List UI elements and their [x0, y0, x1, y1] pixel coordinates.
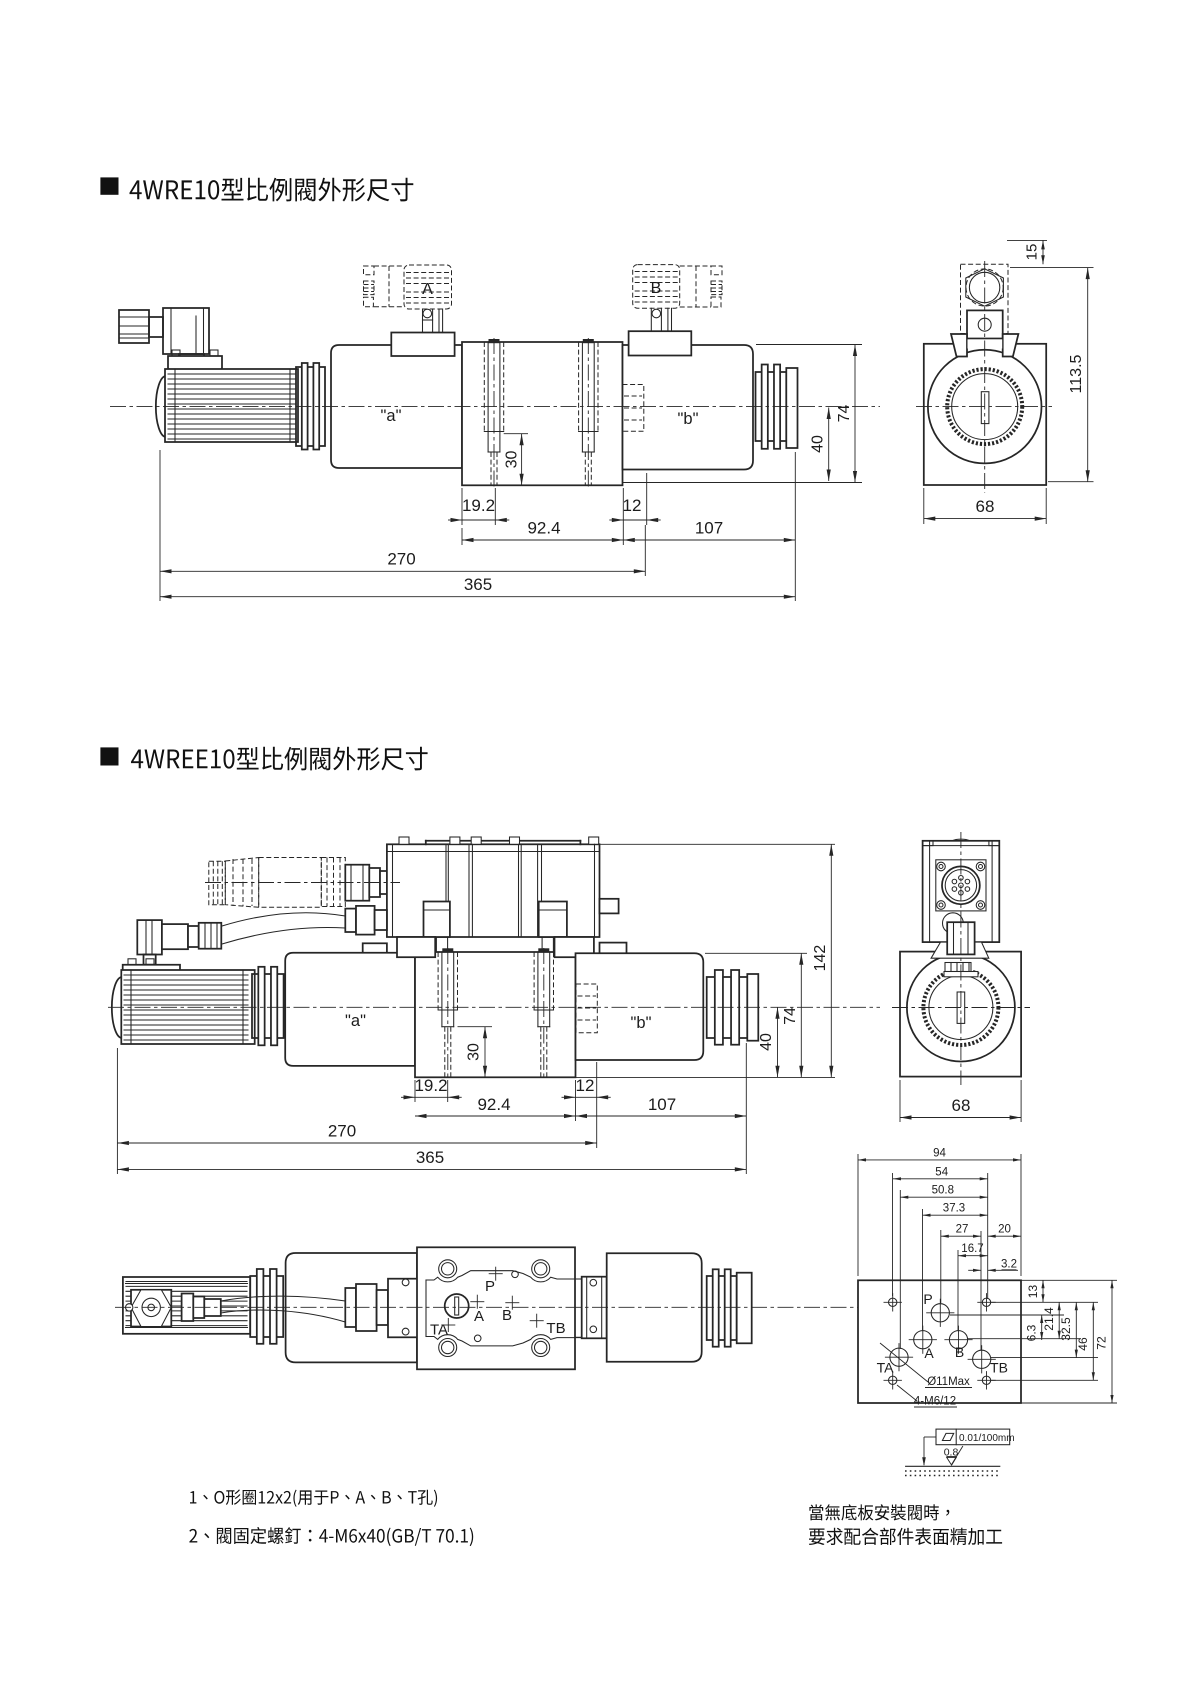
svg-text:94: 94	[933, 1147, 946, 1159]
svg-text:16.7: 16.7	[961, 1243, 983, 1255]
svg-text:B: B	[502, 1307, 512, 1324]
svg-text:142: 142	[812, 945, 829, 972]
svg-text:21.4: 21.4	[1042, 1307, 1056, 1331]
svg-text:32.5: 32.5	[1059, 1317, 1073, 1341]
svg-text:TB: TB	[546, 1320, 565, 1337]
svg-text:270: 270	[328, 1122, 356, 1141]
svg-text:12: 12	[576, 1076, 595, 1095]
svg-text:30: 30	[466, 1043, 483, 1061]
svg-text:50.8: 50.8	[932, 1185, 954, 1197]
svg-text:27: 27	[956, 1224, 969, 1236]
svg-text:107: 107	[648, 1095, 676, 1114]
svg-text:37.3: 37.3	[943, 1203, 965, 1215]
svg-text:P: P	[485, 1278, 495, 1295]
svg-text:365: 365	[416, 1148, 444, 1167]
svg-text:A: A	[924, 1345, 934, 1361]
svg-text:6.3: 6.3	[1025, 1324, 1039, 1341]
svg-text:107: 107	[695, 519, 723, 538]
svg-text:20: 20	[998, 1224, 1011, 1236]
svg-text:TA: TA	[877, 1360, 895, 1376]
svg-text:365: 365	[464, 575, 492, 594]
svg-text:15: 15	[1024, 244, 1041, 261]
svg-text:"b": "b"	[631, 1014, 652, 1032]
svg-text:Ø11Max: Ø11Max	[927, 1376, 970, 1388]
svg-text:3.2: 3.2	[1001, 1258, 1017, 1270]
svg-text:74: 74	[836, 405, 853, 423]
svg-text:"a": "a"	[381, 407, 402, 425]
svg-text:113.5: 113.5	[1068, 354, 1085, 393]
svg-text:13: 13	[1026, 1285, 1040, 1299]
svg-text:B: B	[651, 280, 662, 297]
svg-text:54: 54	[935, 1166, 948, 1178]
svg-text:"b": "b"	[678, 410, 699, 428]
svg-text:0.01/100mm: 0.01/100mm	[959, 1433, 1015, 1444]
svg-text:12: 12	[623, 496, 642, 515]
svg-text:92.4: 92.4	[477, 1095, 510, 1114]
svg-text:40: 40	[810, 435, 827, 453]
svg-text:4-M6/12: 4-M6/12	[914, 1396, 956, 1408]
svg-text:72: 72	[1095, 1336, 1109, 1350]
svg-text:46: 46	[1076, 1337, 1090, 1351]
svg-text:"a": "a"	[345, 1012, 366, 1030]
svg-text:68: 68	[952, 1096, 971, 1115]
svg-text:19.2: 19.2	[462, 496, 495, 515]
svg-text:74: 74	[782, 1007, 799, 1025]
svg-text:30: 30	[504, 451, 521, 469]
svg-text:A: A	[474, 1308, 484, 1325]
svg-text:P: P	[923, 1291, 932, 1307]
svg-text:TA: TA	[430, 1322, 448, 1339]
svg-text:270: 270	[387, 550, 415, 569]
svg-text:68: 68	[976, 497, 995, 516]
svg-text:B: B	[955, 1344, 964, 1360]
svg-text:40: 40	[758, 1033, 775, 1051]
svg-text:92.4: 92.4	[527, 519, 560, 538]
svg-text:TB: TB	[990, 1360, 1008, 1376]
svg-text:A: A	[422, 281, 433, 298]
svg-text:19.2: 19.2	[414, 1076, 447, 1095]
